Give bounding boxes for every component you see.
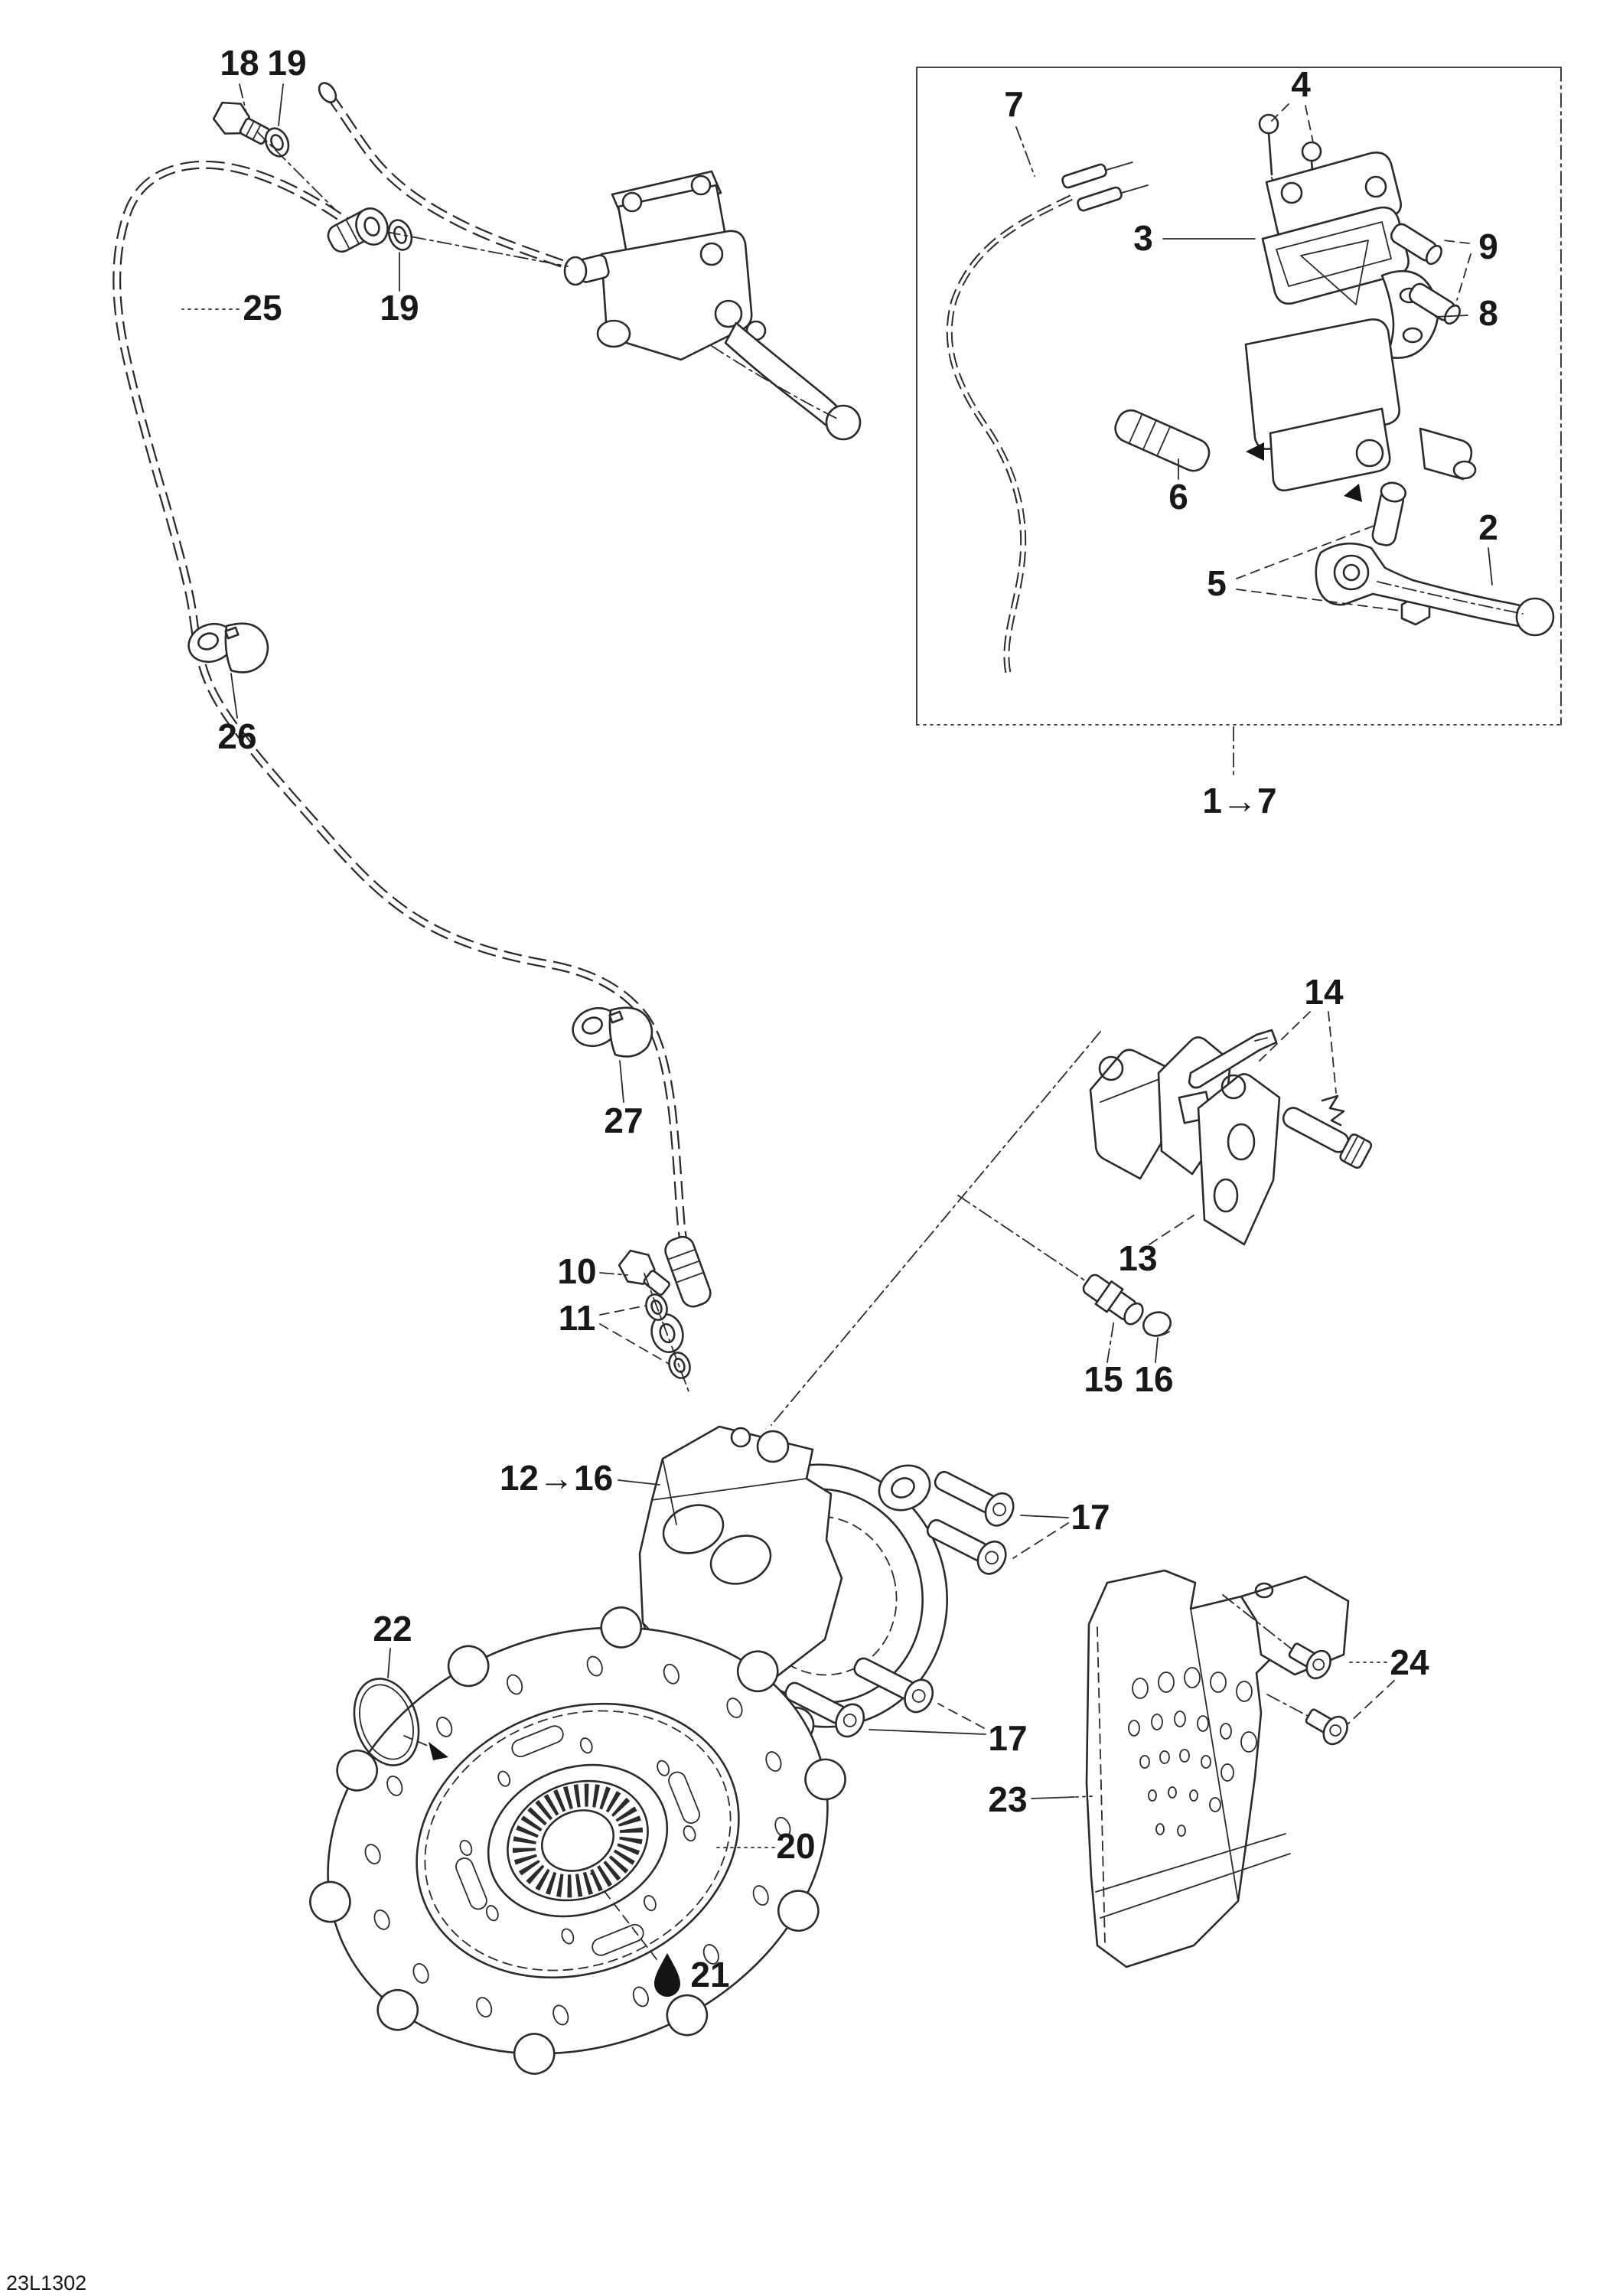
callout-1-7: 1→7: [1202, 781, 1276, 820]
leader-23a: [1031, 1797, 1074, 1799]
callout-2: 2: [1478, 507, 1498, 547]
bleeder-axis: [958, 1195, 1093, 1286]
brake-pads-group: [771, 1030, 1373, 1425]
bleeder-cap: [1140, 1309, 1174, 1340]
screw-24b: [1302, 1703, 1352, 1749]
callout-20: 20: [776, 1826, 815, 1866]
leader-11a: [600, 1306, 646, 1315]
callout-17a: 17: [1071, 1497, 1110, 1537]
hose-lower-fitting: [662, 1234, 713, 1309]
mc-hose-fitting: [1111, 406, 1214, 475]
screw-4b-head: [1302, 142, 1321, 161]
brake-parts-diagram: Brembo: [0, 0, 1623, 2296]
callout-9: 9: [1478, 227, 1498, 266]
parts-diagram-page: Brembo: [0, 0, 1623, 2296]
figure-code: 23L1302: [6, 2272, 86, 2294]
leader-17b2: [938, 1704, 984, 1728]
leader-24b: [1348, 1681, 1394, 1724]
caliper-boss-bolt: [732, 1428, 750, 1446]
pad-spring-clip: [1322, 1096, 1344, 1125]
callout-17b: 17: [988, 1718, 1027, 1758]
callout-6: 6: [1168, 477, 1188, 517]
mc-piston-boot: [598, 321, 630, 347]
mc-inlet-eye: [565, 257, 586, 285]
callout-27: 27: [604, 1101, 643, 1140]
callout-16: 16: [1134, 1359, 1173, 1399]
connector-fork-2: [1122, 185, 1148, 193]
harness-connectors: [1061, 162, 1148, 212]
part-guard-23: [1087, 1570, 1348, 1967]
lever-pivot-boss: [1335, 556, 1368, 589]
callout-11: 11: [559, 1298, 596, 1338]
screw-4a-shaft: [1269, 133, 1272, 174]
callout-19a: 19: [267, 43, 306, 83]
leader-7: [1016, 127, 1035, 176]
callout-8: 8: [1478, 293, 1498, 333]
leader-17b1: [869, 1730, 986, 1734]
callout-19b: 19: [380, 288, 419, 328]
callout-7: 7: [1004, 84, 1024, 124]
callout-18: 18: [220, 43, 259, 83]
callout-3: 3: [1133, 218, 1153, 258]
callout-12-16: 12→16: [500, 1458, 613, 1498]
leader-17a2: [1013, 1523, 1068, 1558]
spade-connector-1: [1061, 163, 1107, 188]
leader-4a: [1272, 104, 1289, 121]
lower-fitting-body: [662, 1234, 713, 1309]
bleeder-screw: [1080, 1270, 1148, 1329]
leader-27: [620, 1061, 624, 1102]
banjo-bolt: [210, 96, 274, 152]
harness-wire-outline: [950, 197, 1071, 675]
leader-9b: [1457, 254, 1471, 300]
mc-boot-end: [1454, 461, 1475, 478]
callout-25: 25: [243, 288, 282, 328]
mc-top-sight: [701, 243, 722, 265]
assembly-arrow-up-icon: [1344, 484, 1362, 502]
part-brake-lever-2: [1316, 543, 1553, 635]
master-cylinder-assembly: [316, 80, 860, 439]
leader-17a1: [1021, 1515, 1068, 1518]
assembly-arrow-right-icon: [1246, 442, 1264, 461]
callout-5: 5: [1207, 563, 1227, 603]
callout-21: 21: [690, 1955, 729, 1994]
leader-12-16: [618, 1480, 660, 1485]
callout-26: 26: [217, 716, 256, 756]
callout-4: 4: [1291, 64, 1311, 104]
callout-15: 15: [1084, 1359, 1123, 1399]
lever-ball-end: [1517, 598, 1553, 635]
pads-install-axis: [771, 1032, 1100, 1425]
pushrod-pin: [1370, 481, 1407, 547]
pad-pin: [1278, 1101, 1373, 1169]
callout-24: 24: [1390, 1642, 1429, 1682]
leader-2: [1488, 548, 1492, 585]
part-washer-19b: [385, 217, 568, 266]
leader-26: [231, 673, 237, 718]
mc-lever-ball: [826, 406, 860, 439]
leader-19a: [279, 84, 283, 126]
harness-wire-core: [950, 197, 1071, 675]
reservoir-screw-2: [692, 176, 710, 194]
banjo-axis-19b: [386, 232, 568, 266]
mc-sight-glass: [1357, 440, 1383, 466]
bolt-17a: [929, 1463, 1018, 1531]
callout-10: 10: [557, 1251, 596, 1291]
inset-box: [917, 67, 1561, 725]
leader-9a: [1443, 240, 1469, 243]
guard-plate: [1087, 1570, 1275, 1967]
callout-13: 13: [1118, 1238, 1157, 1278]
fitting-body: [1111, 406, 1214, 475]
part-hose-clamp-27: [568, 1002, 652, 1056]
leader-13: [1149, 1215, 1194, 1244]
leader-23b: [1076, 1796, 1093, 1797]
callout-23: 23: [988, 1779, 1027, 1819]
spade-connector-2: [1077, 186, 1123, 211]
callout-14: 14: [1304, 972, 1344, 1012]
leader-4b: [1305, 106, 1313, 142]
callout-22: 22: [373, 1609, 412, 1649]
leader-22: [388, 1649, 390, 1678]
leader-14b: [1328, 1012, 1336, 1093]
connector-fork-1: [1106, 162, 1133, 170]
reservoir-screw-1: [623, 193, 641, 211]
leader-15: [1107, 1319, 1114, 1362]
caliper-inlet-boss: [758, 1431, 788, 1462]
